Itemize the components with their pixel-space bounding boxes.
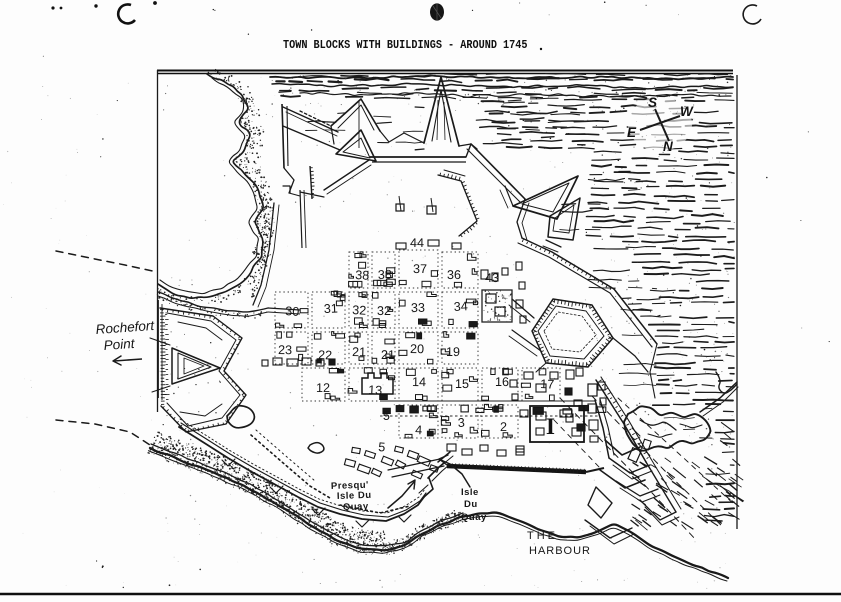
svg-text:TOWN BLOCKS WITH BUILDINGS - A: TOWN BLOCKS WITH BUILDINGS - AROUND 1745 xyxy=(283,39,528,52)
svg-text:23: 23 xyxy=(278,343,292,357)
svg-text:38: 38 xyxy=(378,267,393,282)
svg-text:HARBOUR: HARBOUR xyxy=(529,545,591,557)
svg-text:21: 21 xyxy=(381,348,395,362)
svg-text:Du: Du xyxy=(464,499,478,510)
svg-text:3: 3 xyxy=(457,416,465,430)
svg-text:5: 5 xyxy=(378,440,386,454)
svg-text:E: E xyxy=(627,125,637,140)
svg-text:33: 33 xyxy=(411,301,425,315)
svg-text:I: I xyxy=(546,414,555,439)
svg-text:32: 32 xyxy=(377,304,391,318)
svg-text:14: 14 xyxy=(412,375,426,389)
svg-text:30: 30 xyxy=(285,304,300,319)
svg-text:W: W xyxy=(680,104,694,119)
svg-text:43: 43 xyxy=(485,271,499,285)
svg-text:31: 31 xyxy=(324,301,339,316)
svg-text:S: S xyxy=(648,95,657,110)
svg-text:13: 13 xyxy=(368,383,383,398)
svg-text:12: 12 xyxy=(316,381,330,395)
svg-text:Isle Du: Isle Du xyxy=(337,490,372,502)
svg-text:Quay: Quay xyxy=(461,512,487,523)
svg-text:20: 20 xyxy=(410,342,424,356)
svg-text:17: 17 xyxy=(540,377,555,392)
svg-text:38: 38 xyxy=(355,268,370,283)
svg-text:5: 5 xyxy=(383,409,391,423)
svg-text:37: 37 xyxy=(413,262,427,276)
svg-text:22: 22 xyxy=(318,348,332,362)
svg-text:32: 32 xyxy=(352,303,367,318)
svg-text:Isle: Isle xyxy=(461,487,479,498)
svg-text:21: 21 xyxy=(352,345,366,359)
svg-text:16: 16 xyxy=(495,375,509,389)
svg-text:15: 15 xyxy=(455,377,469,391)
svg-text:THE: THE xyxy=(527,530,558,542)
svg-text:19: 19 xyxy=(446,345,460,359)
svg-text:36: 36 xyxy=(447,268,461,282)
svg-text:Quay: Quay xyxy=(343,501,369,513)
svg-text:N: N xyxy=(663,139,673,154)
svg-text:Point: Point xyxy=(103,336,136,353)
svg-text:4: 4 xyxy=(415,423,423,437)
svg-text:34: 34 xyxy=(453,299,468,314)
svg-text:2: 2 xyxy=(500,420,507,434)
svg-text:44: 44 xyxy=(410,236,424,250)
